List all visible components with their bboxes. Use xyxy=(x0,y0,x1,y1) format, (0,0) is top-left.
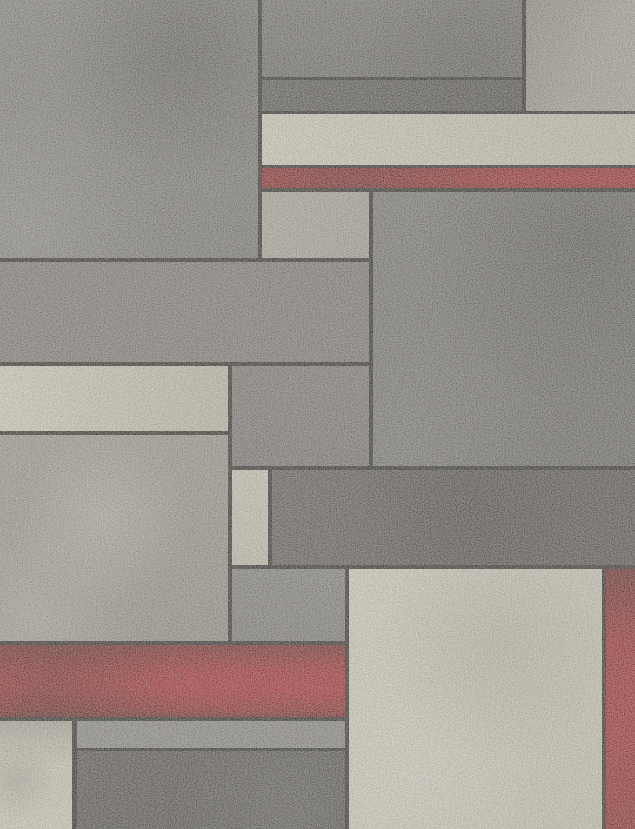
block-left-gray-band xyxy=(0,262,369,362)
block-top-mid-dark-band xyxy=(262,80,522,111)
block-top-mid-gray xyxy=(262,0,522,77)
rug-photo xyxy=(0,0,635,829)
block-cream-column xyxy=(232,470,268,565)
block-bottom-dark xyxy=(77,751,345,829)
block-top-right-light xyxy=(526,0,635,111)
block-red-band xyxy=(262,168,635,188)
block-dark-slate-band xyxy=(272,470,635,565)
block-left-light xyxy=(0,435,228,641)
block-mid-upper-light xyxy=(262,192,369,258)
block-bottom-left-cream xyxy=(0,721,72,829)
block-bottom-gray-sliver xyxy=(77,721,345,748)
block-left-cream xyxy=(0,366,228,431)
block-top-left-gray xyxy=(0,0,258,258)
block-mid-gray-2 xyxy=(232,569,345,641)
block-large-dark xyxy=(373,192,635,466)
block-cream-band xyxy=(262,114,635,165)
block-mid-gray xyxy=(232,366,369,466)
block-red-band-2 xyxy=(0,645,345,717)
block-bottom-cream-large xyxy=(349,569,602,829)
block-right-red-stripe xyxy=(606,569,635,829)
